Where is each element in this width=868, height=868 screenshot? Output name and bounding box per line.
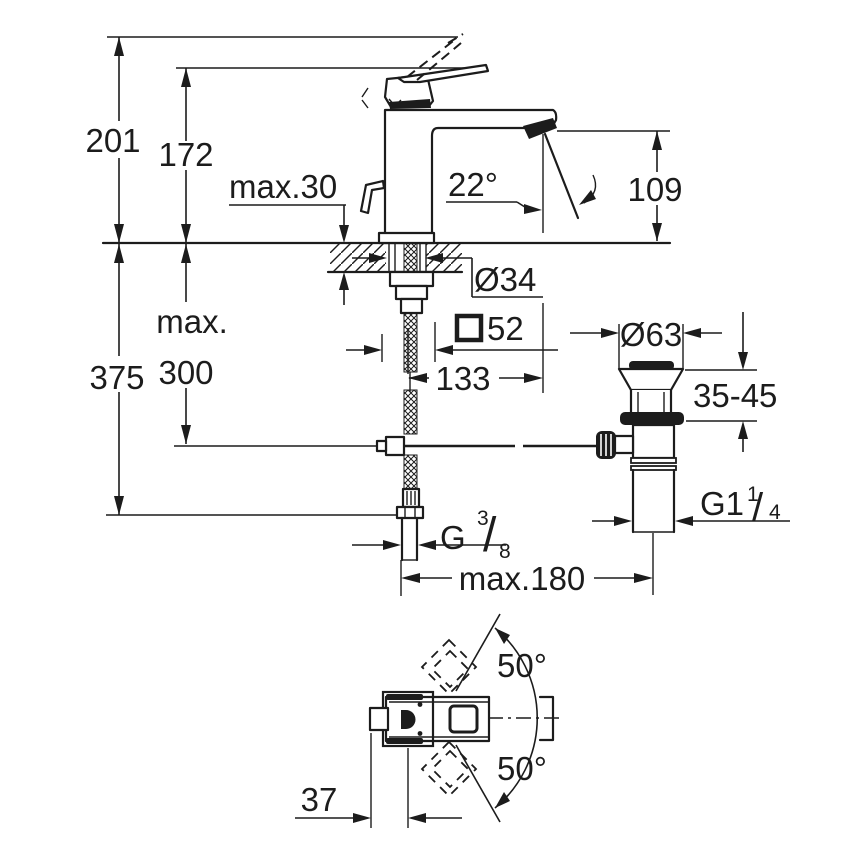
dim-max-deck-thickness: max.30 — [229, 168, 337, 205]
supply-hose-middle — [404, 390, 417, 434]
mounting-nut — [396, 286, 427, 299]
connector-hex-nut — [397, 507, 423, 518]
counter-hatch-left — [330, 244, 386, 271]
dim-install-height: 375 — [89, 359, 144, 396]
dim-flange-diameter: Ø63 — [620, 316, 682, 353]
rod-clamp-screw — [377, 441, 386, 451]
plan-spout-outlet — [450, 706, 477, 732]
waste-thread-slash: / — [752, 486, 764, 530]
supply-thread-prefix: G — [440, 519, 466, 556]
waste-thread-denominator: 4 — [769, 501, 781, 524]
mounting-washer — [390, 272, 433, 286]
technical-drawing-page: 201 172 max.30 22° 109 Ø34 52 133 max. 3… — [0, 0, 868, 868]
dim-handle-swing-upper: 50° — [497, 647, 547, 684]
dim-hose-length-label: max. — [156, 303, 228, 340]
shank-end — [401, 299, 422, 313]
dim-spout-reach: 133 — [435, 360, 490, 397]
base-plate — [379, 233, 434, 243]
dim-handle-projection: 37 — [301, 781, 338, 818]
counter-hatch-right — [426, 244, 462, 271]
drain-joint-ring-1 — [631, 458, 676, 463]
plan-handle-edge-bottom — [386, 738, 423, 744]
dim-base-square: 52 — [487, 310, 524, 347]
dim-hole-diameter: Ø34 — [474, 261, 536, 298]
drain-gasket — [620, 412, 684, 425]
plan-handle-tip — [370, 708, 388, 730]
drain-body — [633, 425, 674, 458]
dim-body-height: 172 — [158, 136, 213, 173]
waste-thread-prefix: G1 — [700, 485, 744, 522]
dim-stream-angle: 22° — [448, 166, 498, 203]
faucet-dimension-drawing: 201 172 max.30 22° 109 Ø34 52 133 max. 3… — [0, 0, 868, 868]
dim-max-drain-spacing: max.180 — [459, 560, 586, 597]
dim-hose-length-value: 300 — [158, 354, 213, 391]
drain-flange — [619, 369, 683, 390]
rod-clamp — [386, 437, 404, 455]
supply-thread-slash: / — [483, 509, 497, 562]
dim-overall-height: 201 — [85, 122, 140, 159]
drain-joint-ring-2 — [631, 466, 676, 470]
dim-spout-outlet-height: 109 — [627, 171, 682, 208]
rod-knob-hub — [615, 436, 633, 453]
supply-thread-denominator: 8 — [499, 540, 511, 563]
dim-clamping-range: 35-45 — [693, 377, 777, 414]
supply-hose-lower — [404, 455, 417, 489]
plan-handle-edge-top — [386, 694, 423, 700]
dim-handle-swing-lower: 50° — [497, 750, 547, 787]
